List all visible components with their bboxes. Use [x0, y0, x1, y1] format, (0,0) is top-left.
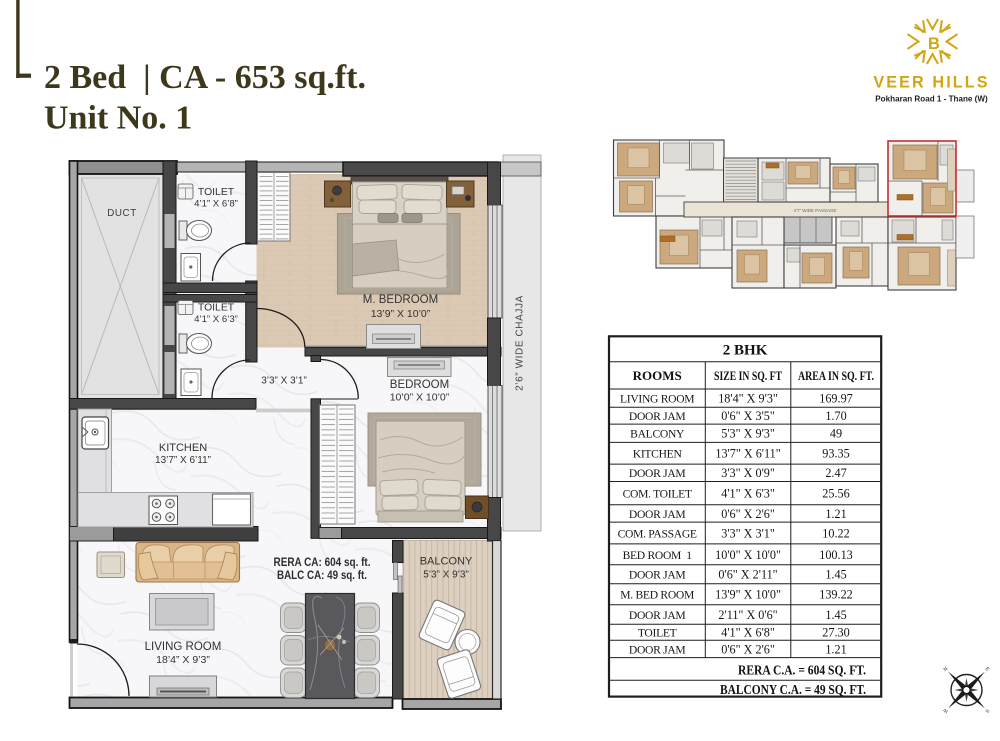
svg-text:B: B — [928, 35, 940, 53]
svg-text:KITCHEN: KITCHEN — [633, 448, 683, 461]
svg-text:3'3" X 0'9": 3'3" X 0'9" — [721, 466, 775, 480]
svg-text:139.22: 139.22 — [819, 588, 853, 602]
svg-text:1.45: 1.45 — [825, 568, 846, 582]
svg-text:169.97: 169.97 — [819, 392, 853, 406]
svg-text:BALC CA: 49 sq. ft.: BALC CA: 49 sq. ft. — [277, 568, 367, 582]
svg-text:SIZE IN SQ. FT: SIZE IN SQ. FT — [714, 368, 782, 383]
svg-text:2.47: 2.47 — [825, 466, 846, 480]
svg-text:1.45: 1.45 — [825, 608, 846, 622]
svg-text:18’4” X 9’3”: 18’4” X 9’3” — [156, 654, 210, 666]
svg-text:1.21: 1.21 — [825, 507, 846, 521]
svg-text:DOOR JAM: DOOR JAM — [629, 569, 686, 582]
svg-text:DOOR JAM: DOOR JAM — [629, 643, 686, 656]
svg-text:TOILET: TOILET — [638, 627, 677, 640]
svg-text:BEDROOM: BEDROOM — [390, 379, 449, 391]
svg-text:2 Bed | CA - 653 sq.ft.: 2 Bed | CA - 653 sq.ft. — [44, 59, 366, 96]
svg-text:2’6” WIDE CHAJJA: 2’6” WIDE CHAJJA — [515, 295, 526, 391]
svg-text:1.21: 1.21 — [825, 642, 846, 656]
svg-text:LIVING ROOM: LIVING ROOM — [620, 393, 694, 406]
svg-text:13'7" X 6'11": 13'7" X 6'11" — [715, 447, 780, 461]
svg-text:0'6" X 2'6": 0'6" X 2'6" — [721, 507, 775, 521]
svg-text:10.22: 10.22 — [822, 526, 849, 540]
svg-text:DOOR JAM: DOOR JAM — [629, 467, 686, 480]
svg-text:COM. PASSAGE: COM. PASSAGE — [618, 527, 697, 540]
svg-text:10'0" X 10'0": 10'0" X 10'0" — [715, 548, 781, 562]
svg-text:0'6" X 3'5": 0'6" X 3'5" — [721, 409, 775, 423]
svg-text:BED ROOM 1: BED ROOM 1 — [623, 549, 693, 562]
svg-text:4'1" X 6'8": 4'1" X 6'8" — [721, 626, 775, 640]
svg-text:13’9” X 10’0”: 13’9” X 10’0” — [371, 308, 431, 320]
svg-text:93.35: 93.35 — [822, 447, 849, 461]
svg-text:4’1” X 6’3”: 4’1” X 6’3” — [194, 314, 238, 325]
svg-text:13'9" X 10'0": 13'9" X 10'0" — [715, 588, 781, 602]
svg-text:10’0” X 10’0”: 10’0” X 10’0” — [390, 392, 450, 404]
svg-text:TOILET: TOILET — [198, 303, 235, 314]
svg-text:VEER HILLS: VEER HILLS — [873, 74, 989, 92]
svg-text:0'6" X 2'11": 0'6" X 2'11" — [718, 568, 777, 582]
svg-text:TOILET: TOILET — [198, 187, 235, 198]
svg-text:4’7” WIDE PASSAGE: 4’7” WIDE PASSAGE — [794, 208, 837, 213]
svg-text:DOOR JAM: DOOR JAM — [629, 508, 686, 521]
svg-text:Unit No. 1: Unit No. 1 — [44, 100, 192, 137]
svg-text:0'6" X 2'6": 0'6" X 2'6" — [721, 642, 775, 656]
svg-text:RERA C.A. = 604 SQ. FT.: RERA C.A. = 604 SQ. FT. — [738, 663, 866, 678]
svg-text:BALCONY: BALCONY — [630, 428, 685, 441]
svg-text:5'3" X 9'3": 5'3" X 9'3" — [721, 427, 775, 441]
svg-text:BALCONY C.A. = 49 SQ. FT.: BALCONY C.A. = 49 SQ. FT. — [720, 683, 866, 698]
svg-text:3’3” X 3’1”: 3’3” X 3’1” — [261, 376, 307, 387]
svg-text:AREA IN SQ. FT.: AREA IN SQ. FT. — [798, 368, 874, 383]
svg-text:DUCT: DUCT — [107, 208, 137, 219]
svg-text:100.13: 100.13 — [819, 548, 853, 562]
svg-text:DOOR JAM: DOOR JAM — [629, 609, 686, 622]
svg-text:27.30: 27.30 — [822, 626, 849, 640]
svg-text:5’3” X 9’3”: 5’3” X 9’3” — [423, 570, 469, 581]
svg-text:KITCHEN: KITCHEN — [159, 442, 207, 454]
svg-text:BALCONY: BALCONY — [420, 556, 473, 568]
svg-text:4'1" X 6'3": 4'1" X 6'3" — [721, 487, 775, 501]
svg-text:LIVING ROOM: LIVING ROOM — [145, 641, 222, 653]
svg-text:Pokharan Road 1 - Thane (W): Pokharan Road 1 - Thane (W) — [875, 95, 988, 104]
svg-text:COM. TOILET: COM. TOILET — [623, 488, 692, 501]
svg-text:18'4" X 9'3": 18'4" X 9'3" — [718, 392, 778, 406]
svg-text:3'3" X 3'1": 3'3" X 3'1" — [721, 526, 775, 540]
svg-text:DOOR JAM: DOOR JAM — [629, 410, 686, 423]
svg-text:49: 49 — [830, 427, 842, 441]
svg-text:25.56: 25.56 — [822, 487, 849, 501]
svg-text:2 BHK: 2 BHK — [723, 343, 768, 359]
svg-text:M. BED ROOM: M. BED ROOM — [620, 589, 694, 602]
svg-text:2'11" X 0'6": 2'11" X 0'6" — [718, 608, 777, 622]
svg-text:13’7” X 6’11”: 13’7” X 6’11” — [155, 455, 211, 466]
svg-text:M. BEDROOM: M. BEDROOM — [363, 294, 438, 306]
svg-text:4’1” X 6’8”: 4’1” X 6’8” — [194, 199, 238, 210]
svg-text:1.70: 1.70 — [825, 409, 846, 423]
svg-text:ROOMS: ROOMS — [633, 368, 682, 383]
